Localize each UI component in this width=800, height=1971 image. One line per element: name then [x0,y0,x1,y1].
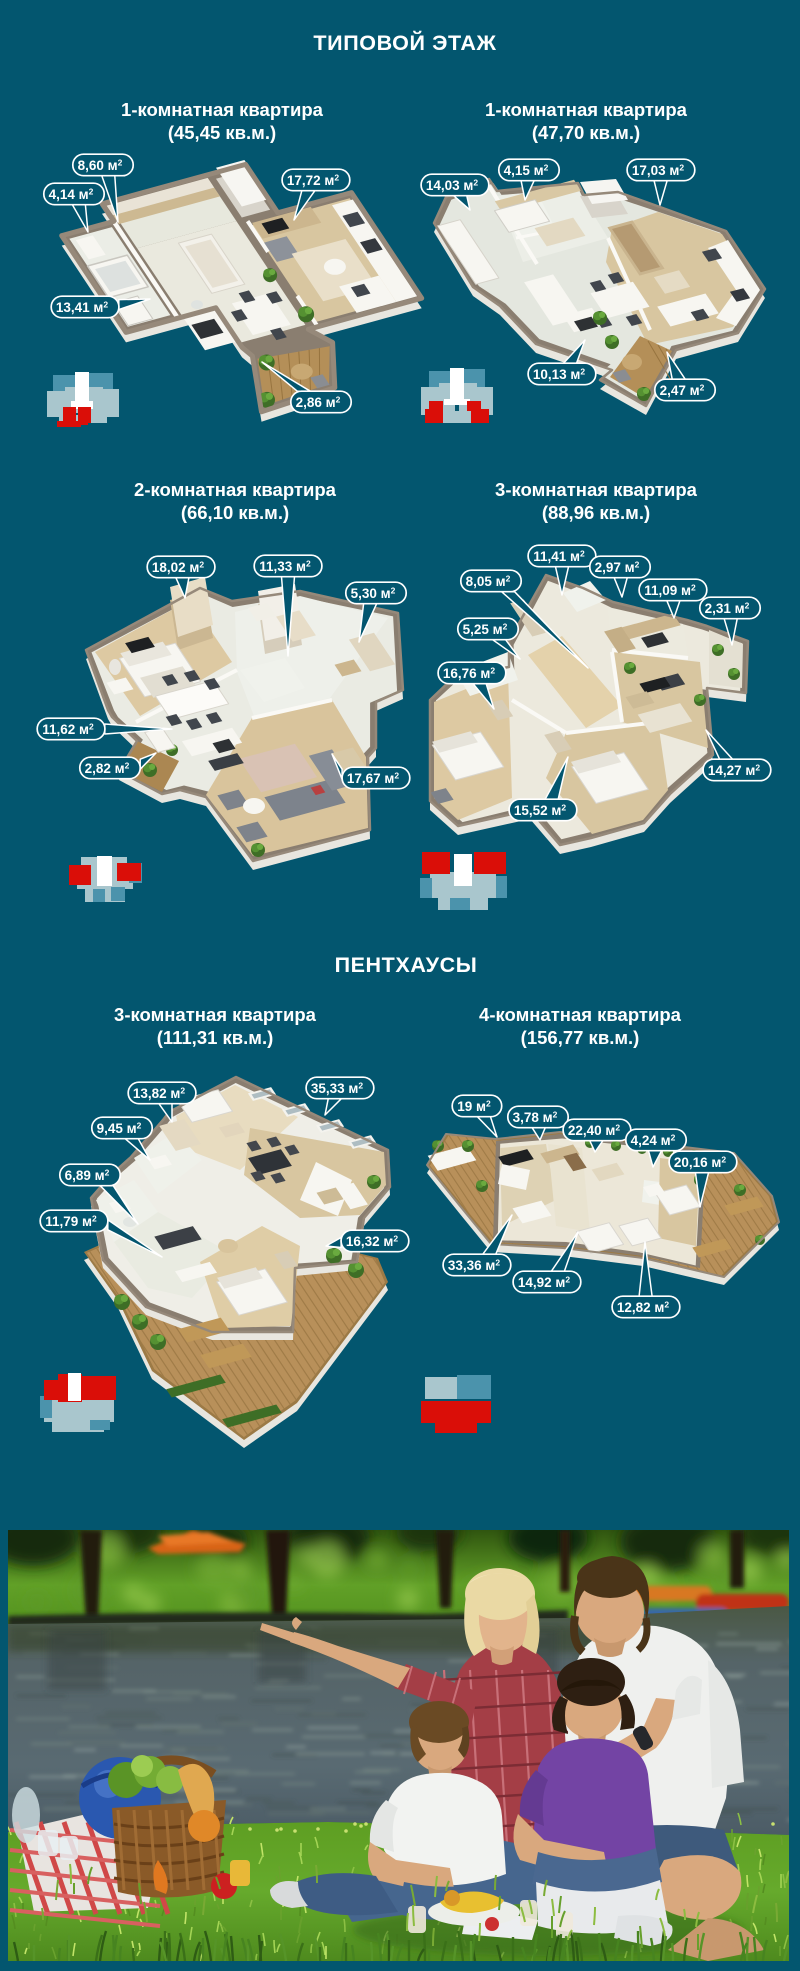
svg-text:8,05 м2: 8,05 м2 [466,573,511,589]
svg-text:4,15 м2: 4,15 м2 [504,162,549,178]
svg-text:4,24 м2: 4,24 м2 [631,1132,676,1148]
svg-text:19 м2: 19 м2 [457,1098,491,1114]
svg-text:17,03 м2: 17,03 м2 [632,162,685,178]
svg-text:12,82 м2: 12,82 м2 [617,1299,670,1315]
svg-text:20,16 м2: 20,16 м2 [674,1154,727,1170]
svg-text:10,13 м2: 10,13 м2 [533,366,586,382]
svg-text:14,27 м2: 14,27 м2 [708,762,761,778]
svg-text:14,92 м2: 14,92 м2 [518,1274,571,1290]
svg-text:3,78 м2: 3,78 м2 [513,1109,558,1125]
svg-text:5,25 м2: 5,25 м2 [463,621,508,637]
svg-text:33,36 м2: 33,36 м2 [448,1257,501,1273]
svg-text:2,97 м2: 2,97 м2 [595,559,640,575]
svg-text:11,09 м2: 11,09 м2 [644,582,696,598]
svg-text:22,40 м2: 22,40 м2 [568,1122,621,1138]
svg-text:16,76 м2: 16,76 м2 [443,665,496,681]
svg-text:14,03 м2: 14,03 м2 [426,177,479,193]
svg-text:2,31 м2: 2,31 м2 [705,600,750,616]
svg-text:15,52 м2: 15,52 м2 [514,802,567,818]
svg-text:2,47 м2: 2,47 м2 [660,382,705,398]
svg-text:11,41 м2: 11,41 м2 [533,548,585,564]
